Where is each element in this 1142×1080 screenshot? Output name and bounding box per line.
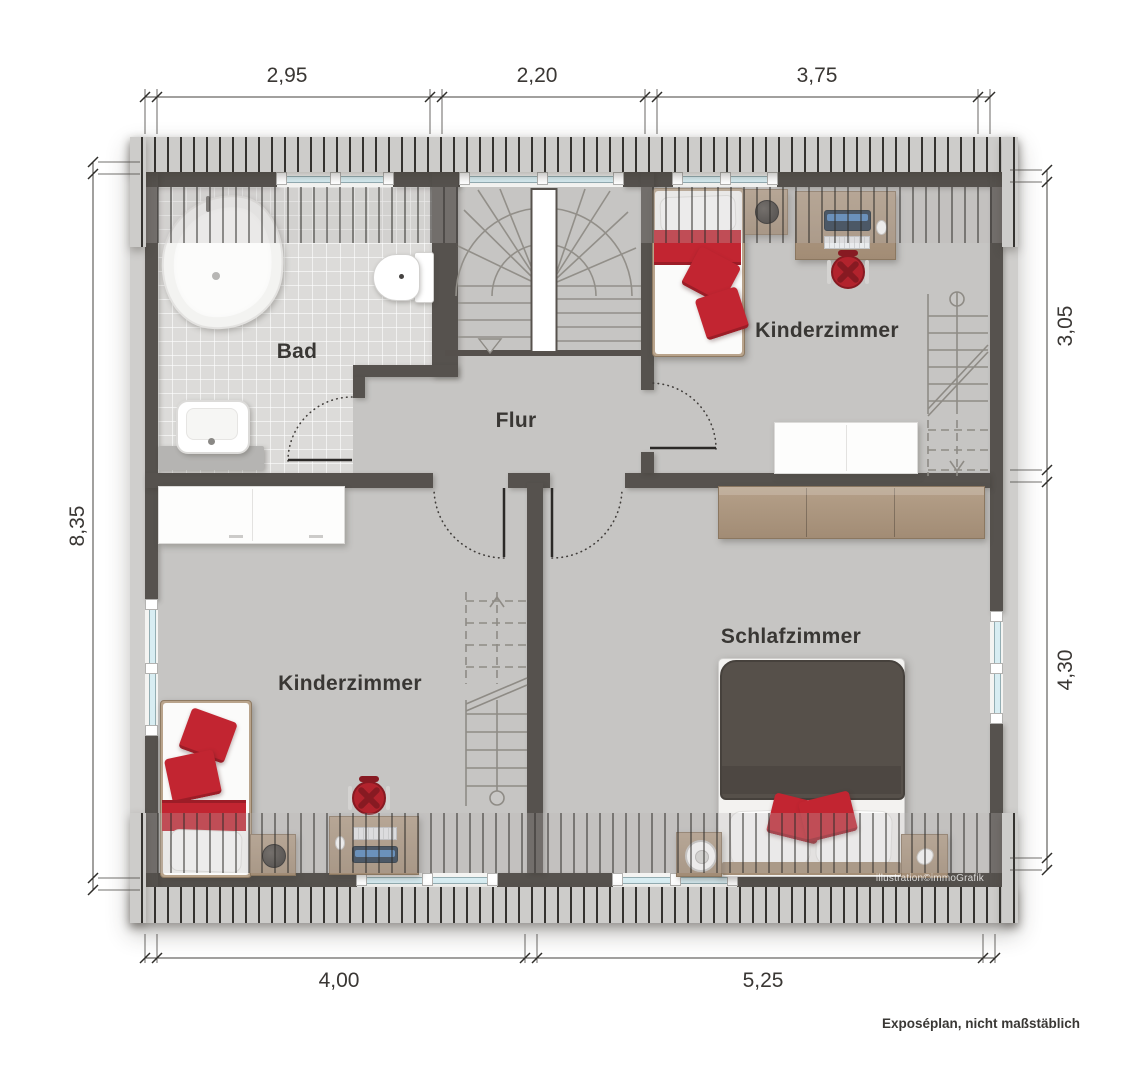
- wall-segment: [145, 172, 277, 187]
- washbasin-faucet: [208, 438, 215, 445]
- duvet-fold: [722, 766, 901, 794]
- room-label-flur: Flur: [496, 409, 537, 433]
- footer-note: Exposéplan, nicht maßstäblich: [820, 1016, 1080, 1031]
- roof-slope-hatch: [146, 187, 458, 243]
- washbasin-bowl: [186, 408, 238, 440]
- wall-segment: [353, 377, 365, 398]
- roof-overhang-band: [130, 137, 146, 247]
- dim-left-1: 8,35: [66, 506, 90, 547]
- room-label-bad: Bad: [277, 340, 318, 364]
- chair-headrest: [838, 250, 858, 256]
- wall-segment: [497, 873, 613, 887]
- office-chair: [827, 250, 869, 294]
- roof-overhang-band: [1002, 813, 1018, 923]
- bathtub-drain: [212, 272, 220, 280]
- chair-headrest: [359, 776, 379, 782]
- washbasin: [176, 400, 250, 454]
- stairwell-edge: [445, 350, 641, 356]
- window: [277, 172, 393, 187]
- roof-overhang-band: [130, 137, 1018, 172]
- dresser: [774, 422, 918, 474]
- toilet-bowl: [373, 254, 420, 301]
- roof-overhang-band: [130, 887, 1018, 923]
- wall-segment: [777, 172, 1003, 187]
- dim-right-2: 4,30: [1054, 650, 1078, 691]
- room-label-kinderzimmer-bottom: Kinderzimmer: [278, 672, 422, 696]
- window: [460, 172, 623, 187]
- dim-bottom-2: 5,25: [743, 969, 784, 993]
- watermark: illustration©immoGrafik: [858, 873, 984, 884]
- dim-top-3: 3,75: [797, 64, 838, 88]
- toilet: [373, 250, 433, 303]
- toilet-flush-dot: [399, 274, 404, 279]
- dim-top-1: 2,95: [267, 64, 308, 88]
- roof-slope-hatch: [641, 187, 1002, 243]
- roof-overhang-band: [130, 813, 146, 923]
- window: [990, 612, 1003, 723]
- floor-plan: Bad Flur Kinderzimmer Kinderzimmer Schla…: [0, 0, 1142, 1080]
- dim-right-1: 3,05: [1054, 306, 1078, 347]
- roof-overhang-band: [1002, 137, 1018, 247]
- window: [673, 172, 777, 187]
- window: [145, 600, 158, 735]
- wall-segment: [353, 365, 458, 377]
- dim-bottom-1: 4,00: [319, 969, 360, 993]
- wall-segment: [641, 452, 654, 473]
- wardrobe: [158, 486, 345, 544]
- room-label-schlafzimmer: Schlafzimmer: [721, 625, 861, 649]
- room-label-kinderzimmer-top: Kinderzimmer: [755, 319, 899, 343]
- dim-top-2: 2,20: [517, 64, 558, 88]
- roof-slope-hatch: [146, 813, 1002, 873]
- sideboard: [718, 486, 985, 539]
- window: [357, 873, 497, 887]
